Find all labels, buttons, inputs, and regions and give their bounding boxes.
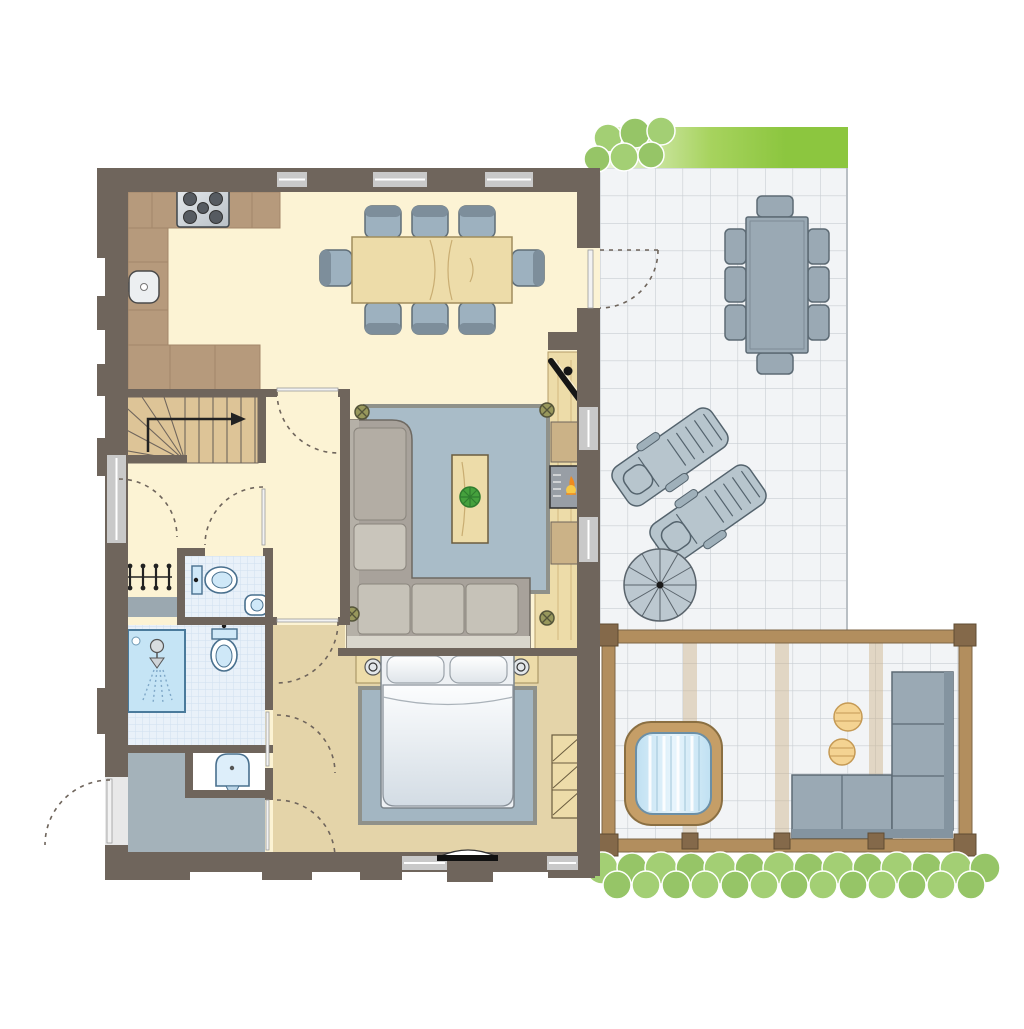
- double-bed: [381, 651, 514, 808]
- shower: [128, 630, 185, 712]
- floor-plan-page: [0, 0, 1024, 1024]
- bedside-lamp-icon: [513, 659, 529, 675]
- front-door: [105, 777, 128, 845]
- burner-icon: [210, 193, 223, 206]
- washbasin: [216, 754, 249, 792]
- drain-icon: [132, 637, 140, 645]
- cabinet: [551, 522, 580, 564]
- coffee-table: [452, 455, 488, 543]
- side-table: [834, 703, 862, 731]
- pergola-terrace: [596, 624, 976, 856]
- door-arc: [45, 780, 110, 845]
- door-leaf: [266, 712, 269, 766]
- patio-door: [577, 248, 600, 308]
- dresser: [552, 735, 581, 818]
- door-leaf: [266, 800, 269, 850]
- hedge-row: [586, 852, 1000, 899]
- floor-plan-drawing: [0, 0, 1024, 1024]
- burner-icon: [198, 203, 209, 214]
- cabinet: [551, 422, 581, 462]
- pillow: [450, 656, 507, 683]
- doormat: [125, 597, 178, 617]
- bedside-lamp-icon: [365, 659, 381, 675]
- plant-icon: [460, 487, 480, 507]
- duvet: [383, 685, 513, 806]
- hot-tub: [625, 722, 722, 825]
- corner-washbasin: [245, 595, 268, 615]
- toilet: [211, 624, 237, 671]
- outdoor-dining-table: [746, 217, 808, 353]
- door-leaf: [277, 619, 338, 622]
- spiral-staircase: [624, 549, 696, 621]
- door-leaf: [277, 388, 338, 391]
- kitchen-counter-block: [128, 345, 260, 392]
- stairs: [117, 397, 258, 463]
- bush-cluster: [584, 117, 675, 172]
- stove: [177, 188, 229, 227]
- side-table: [829, 739, 855, 765]
- burner-icon: [184, 193, 197, 206]
- door-leaf: [262, 489, 265, 545]
- fireplace-stove: [550, 466, 581, 508]
- burner-icon: [210, 211, 223, 224]
- burner-icon: [184, 211, 197, 224]
- toilet: [192, 566, 237, 594]
- pillow: [387, 656, 444, 683]
- patio: [584, 117, 848, 632]
